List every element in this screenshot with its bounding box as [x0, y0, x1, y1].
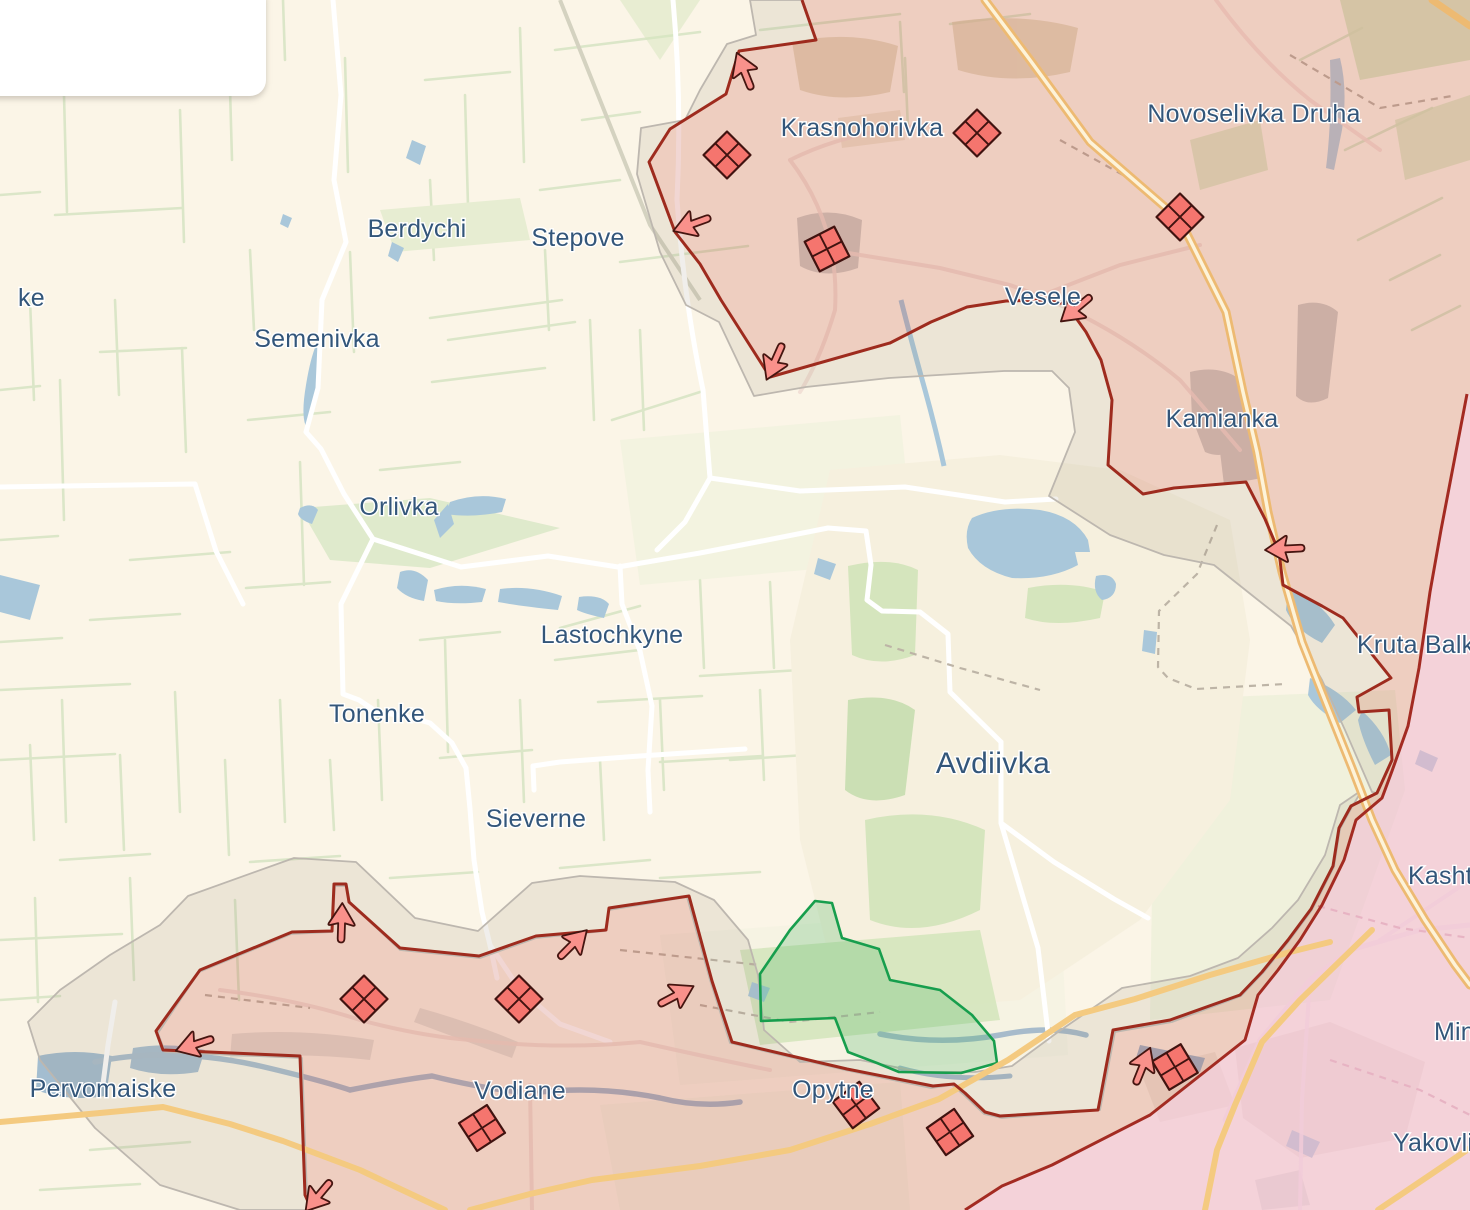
svg-text:Novoselivka Druha: Novoselivka Druha [1147, 100, 1360, 128]
svg-text:Mineralne: Mineralne [1434, 1018, 1470, 1046]
svg-text:Lastochkyne: Lastochkyne [541, 621, 684, 649]
svg-text:Kruta Balka: Kruta Balka [1357, 631, 1470, 659]
svg-text:Yakovlivka: Yakovlivka [1393, 1129, 1470, 1157]
svg-text:Stepove: Stepove [531, 224, 624, 252]
svg-text:Avdiivka: Avdiivka [936, 747, 1050, 780]
svg-text:Semenivka: Semenivka [254, 325, 379, 353]
svg-text:Orlivka: Orlivka [359, 493, 438, 521]
svg-text:Vesele: Vesele [1005, 283, 1081, 311]
svg-text:Kamianka: Kamianka [1166, 405, 1279, 433]
svg-text:Pervomaiske: Pervomaiske [30, 1075, 177, 1103]
svg-text:Kashtanove: Kashtanove [1408, 862, 1470, 890]
svg-text:ke: ke [18, 284, 45, 312]
svg-text:Krasnohorivka: Krasnohorivka [781, 114, 943, 142]
svg-text:Tonenke: Tonenke [329, 700, 425, 728]
svg-text:Opytne: Opytne [792, 1076, 874, 1104]
svg-text:Vodiane: Vodiane [474, 1077, 566, 1105]
svg-text:Sieverne: Sieverne [486, 805, 586, 833]
svg-text:Berdychi: Berdychi [368, 215, 467, 243]
